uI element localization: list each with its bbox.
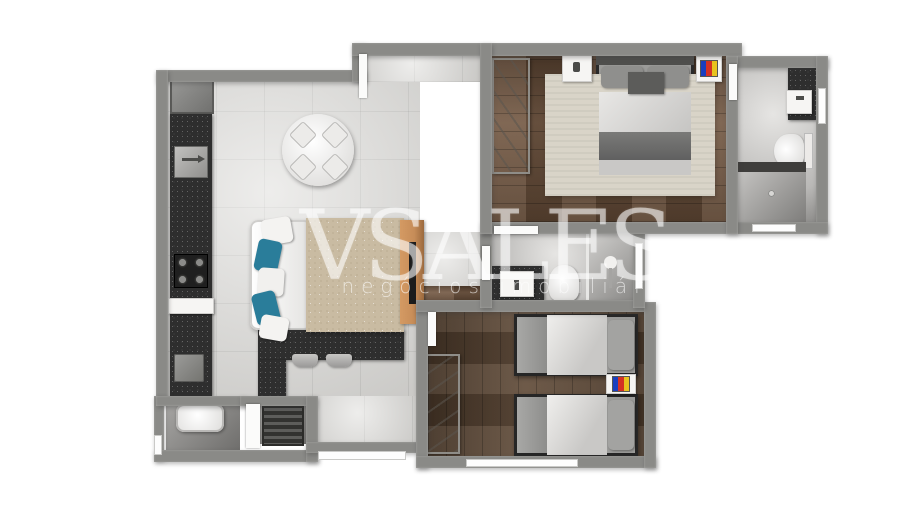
bedroom1-wardrobe	[492, 58, 530, 174]
wall-bedroom2-top	[416, 300, 645, 312]
bedroom1-tv	[701, 61, 717, 76]
kitchen-faucet-icon-tip	[198, 155, 205, 163]
wall-bedroom1-left	[480, 43, 492, 234]
bedroom2-wardrobe	[426, 354, 460, 454]
tv-color-yellow	[624, 377, 629, 391]
shower-drain	[768, 190, 775, 197]
window-bathroom1-right	[818, 88, 826, 124]
breakfast-bar-return	[258, 360, 286, 398]
wall-bedroom2-left	[416, 302, 428, 468]
folded-runner	[628, 72, 664, 94]
bedroom1-door-leaf	[494, 226, 538, 234]
entry-floor	[366, 54, 480, 82]
wall-left-outer	[156, 70, 168, 402]
wall-top-kitchen	[156, 70, 366, 82]
bed-sheet	[599, 92, 691, 132]
bathroom2-door-leaf	[482, 246, 490, 280]
showerhead-stem	[609, 268, 612, 288]
window-laundry-left	[154, 435, 162, 455]
single-bed-a-duvet	[547, 315, 607, 375]
shower-glass	[586, 234, 589, 300]
circulation-floor	[316, 396, 420, 444]
entry-door-leaf	[359, 54, 367, 98]
laundry-tub	[176, 404, 224, 432]
wall-top-bathroom1	[726, 56, 828, 68]
bar-stool	[326, 354, 352, 367]
living-tv	[409, 242, 416, 304]
wall-top-main	[352, 43, 742, 56]
bar-stool	[292, 354, 318, 367]
cooktop	[174, 254, 208, 288]
single-bed-a-pillow	[608, 320, 634, 370]
floor-plan: VSALES negócios imobiliários	[0, 0, 900, 506]
bed-blanket	[599, 132, 691, 160]
bedroom2-door-leaf	[428, 312, 436, 346]
wall-laundry-top	[156, 396, 246, 406]
sofa-pillow-white	[258, 314, 290, 342]
fridge	[170, 78, 214, 114]
bathroom1-tap	[796, 96, 804, 100]
bathroom2-toilet	[549, 265, 579, 301]
laundry-niche-door-leaf	[246, 404, 260, 448]
utility-unit	[262, 406, 304, 446]
single-bed-b-foot	[517, 397, 547, 453]
bathroom1-halfwall	[738, 162, 806, 172]
single-bed-a-foot	[517, 317, 547, 373]
single-bed-b-duvet	[547, 395, 607, 455]
wall-right-bathroom1	[816, 56, 828, 234]
bathroom1-sink	[786, 90, 812, 114]
window-bathroom1-bottom	[752, 224, 796, 232]
under-counter-appliance	[174, 354, 204, 382]
window-bathroom2-right	[635, 243, 643, 289]
counter-white-section	[168, 298, 214, 314]
wall-bedroom2-right	[644, 302, 656, 468]
bathroom1-door-leaf	[729, 64, 737, 100]
tv-color-yellow	[712, 61, 717, 76]
living-rug	[306, 218, 404, 332]
bathroom2-tap	[514, 280, 519, 290]
nightstand-decor	[573, 62, 580, 72]
single-bed-b-pillow	[608, 400, 634, 450]
wall-bottom-left	[154, 450, 318, 462]
window-circulation	[318, 451, 406, 460]
dining-table	[282, 114, 354, 186]
bathroom1-shower	[738, 172, 806, 222]
window-bedroom2	[466, 459, 578, 467]
bed-foot	[599, 160, 691, 175]
bedroom2-tv	[613, 377, 629, 391]
